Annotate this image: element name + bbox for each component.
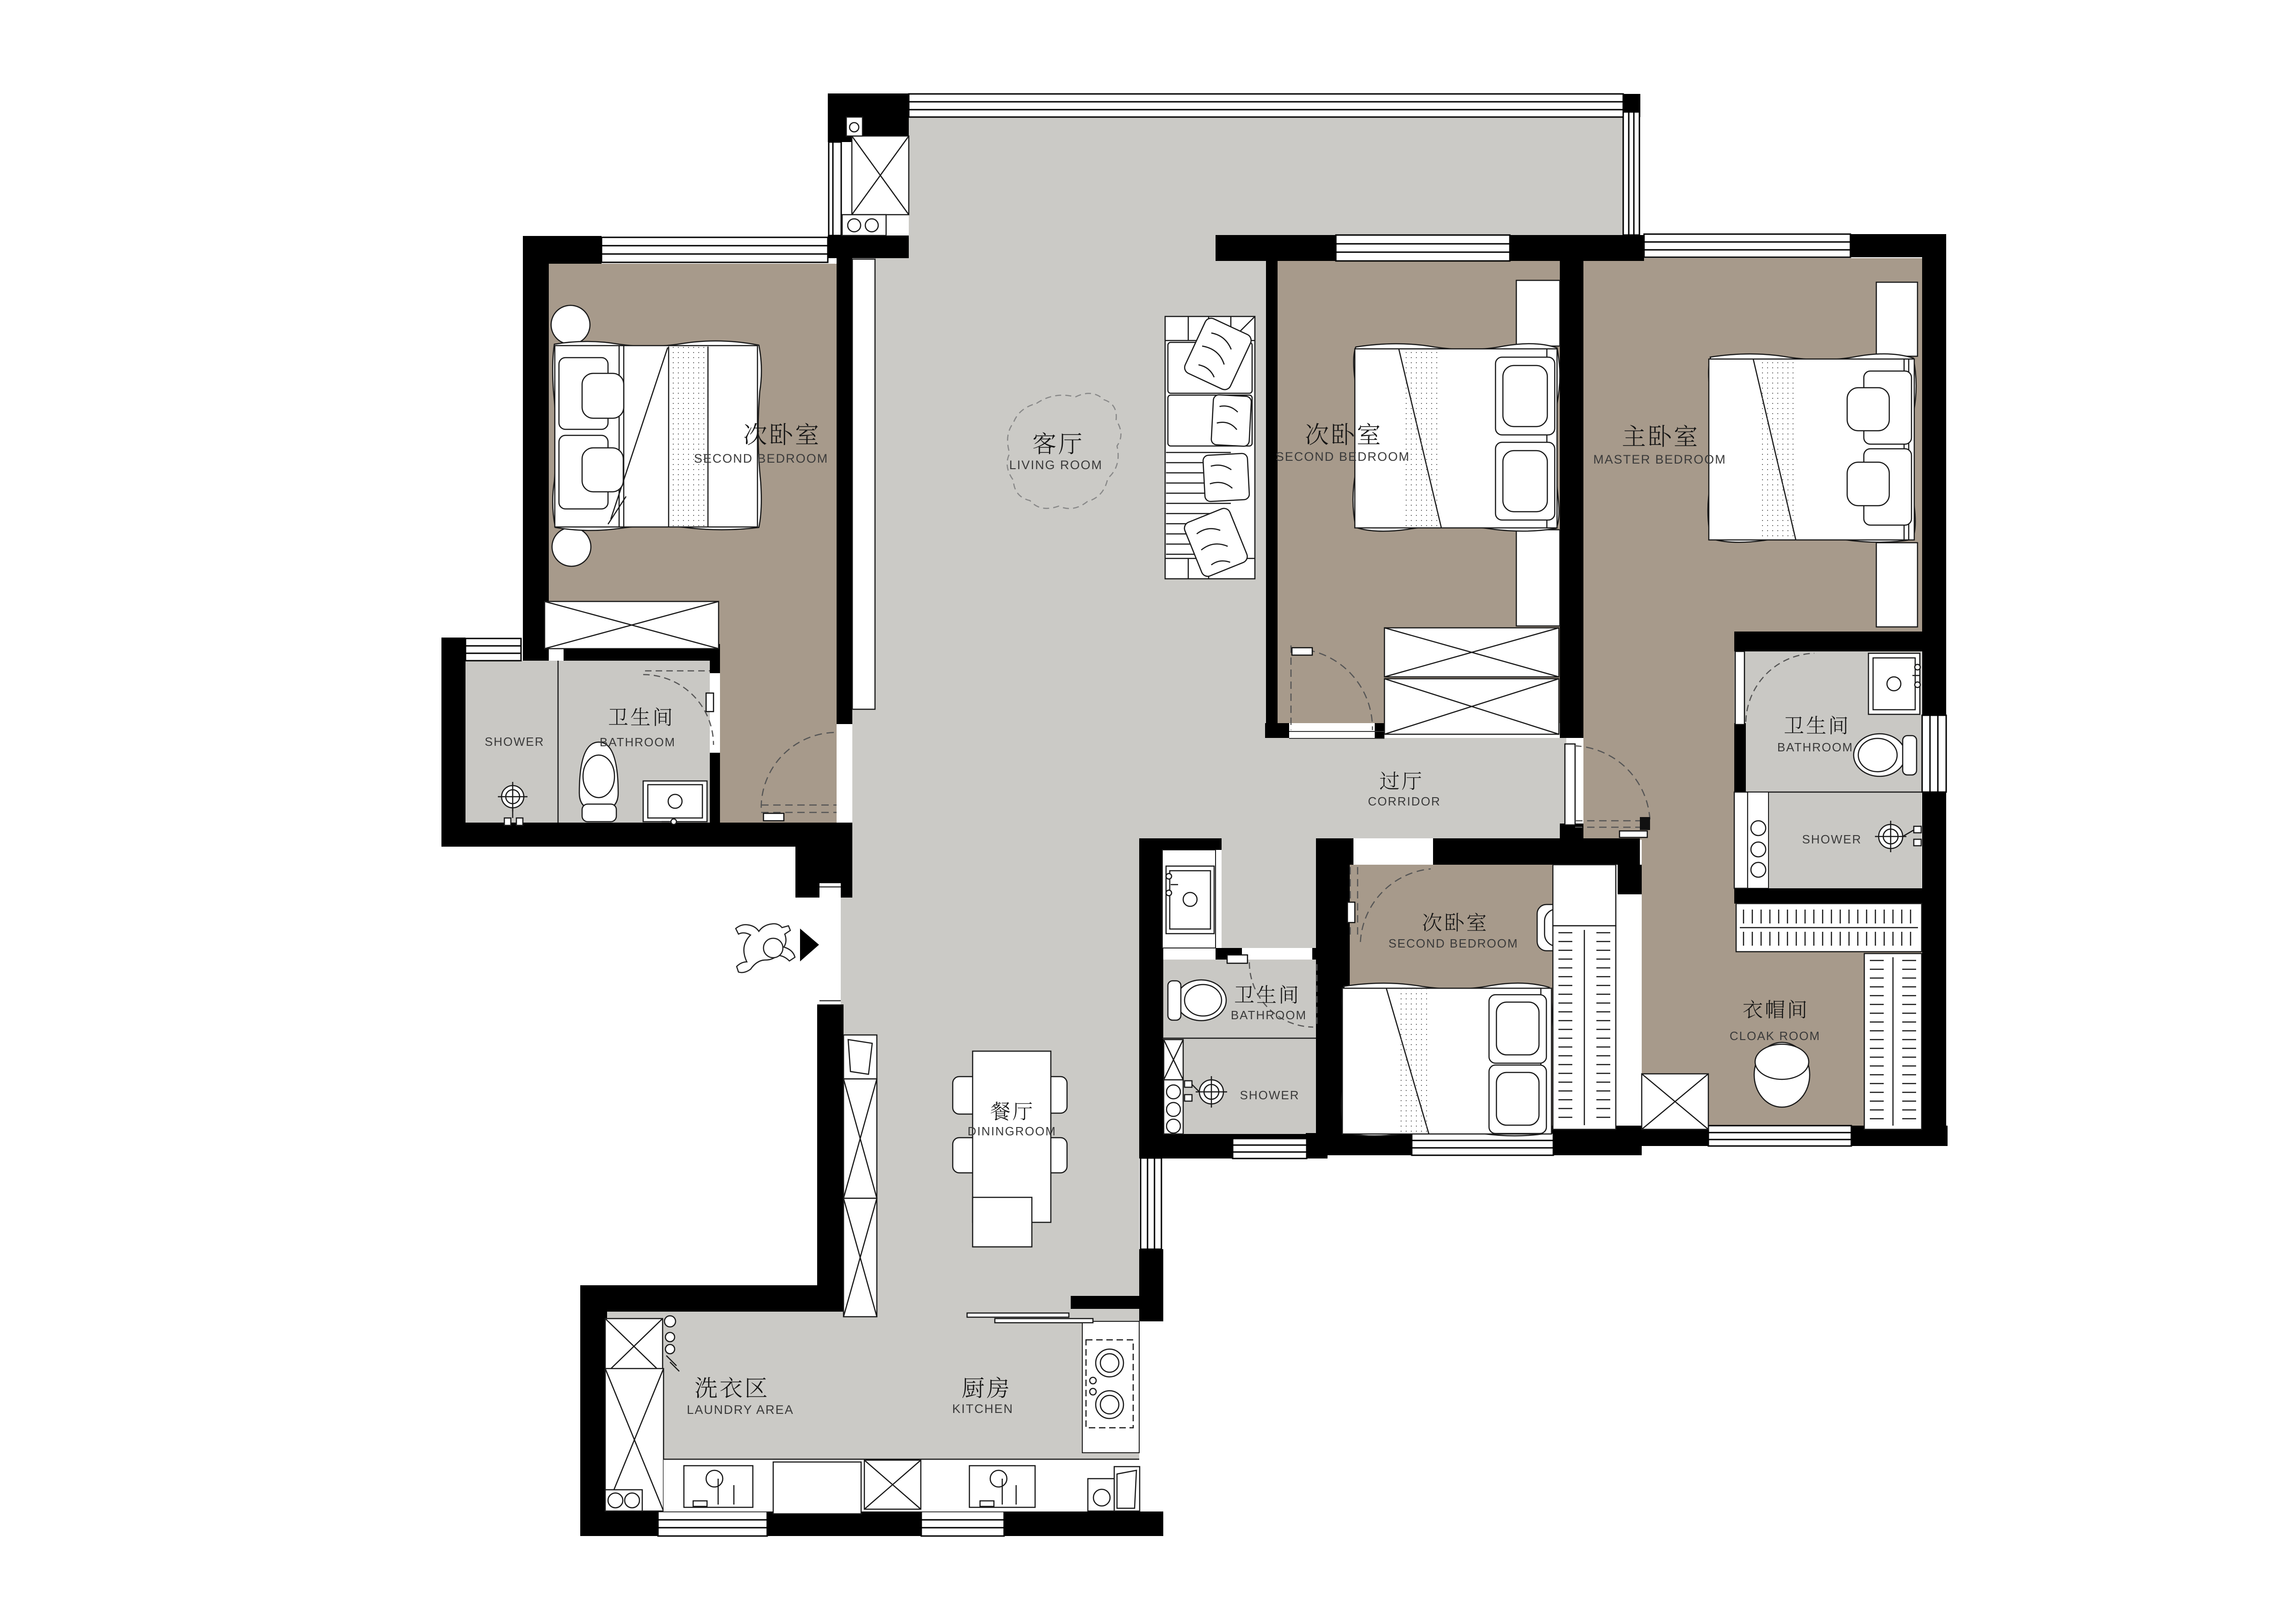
svg-text:BATHROOM: BATHROOM <box>1231 1008 1307 1022</box>
svg-text:CORRIDOR: CORRIDOR <box>1368 794 1441 808</box>
svg-text:LIVING ROOM: LIVING ROOM <box>1009 458 1103 472</box>
svg-text:SHOWER: SHOWER <box>1802 832 1862 846</box>
svg-text:DININGROOM: DININGROOM <box>968 1124 1056 1138</box>
svg-text:CLOAK ROOM: CLOAK ROOM <box>1730 1029 1820 1043</box>
svg-text:SECOND BEDROOM: SECOND BEDROOM <box>1276 450 1410 464</box>
svg-text:SHOWER: SHOWER <box>485 735 545 749</box>
svg-text:SECOND BEDROOM: SECOND BEDROOM <box>694 452 829 465</box>
svg-text:SHOWER: SHOWER <box>1240 1088 1300 1102</box>
svg-text:BATHROOM: BATHROOM <box>1777 740 1853 754</box>
svg-text:LAUNDRY AREA: LAUNDRY AREA <box>687 1403 794 1417</box>
svg-text:SECOND BEDROOM: SECOND BEDROOM <box>1389 936 1519 950</box>
svg-text:KITCHEN: KITCHEN <box>952 1402 1014 1416</box>
svg-text:BATHROOM: BATHROOM <box>600 735 676 749</box>
svg-text:MASTER BEDROOM: MASTER BEDROOM <box>1593 452 1726 466</box>
